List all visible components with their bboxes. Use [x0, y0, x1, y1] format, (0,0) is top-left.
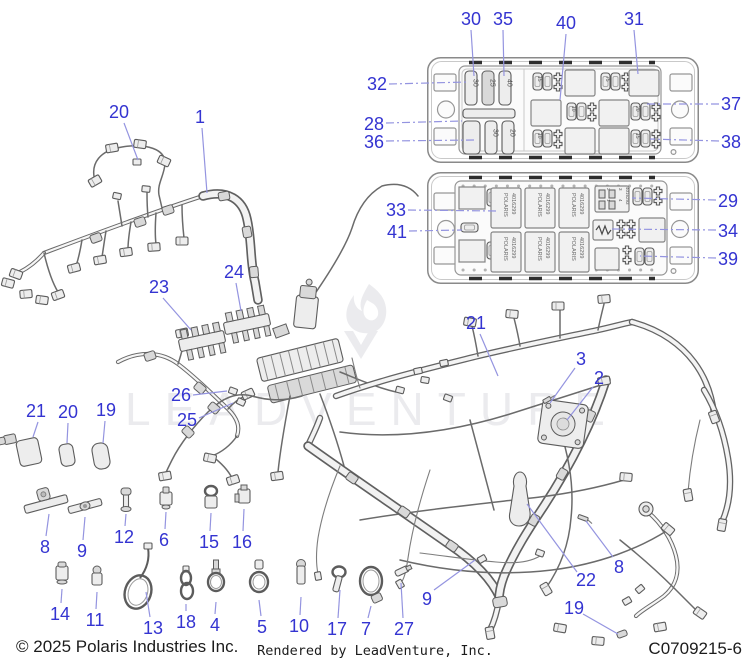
- part-6-clip: [160, 487, 172, 509]
- part-15-clip: [205, 486, 217, 508]
- part-4-bolt-clamp: [208, 560, 224, 591]
- fuse-value: 20: [509, 129, 516, 137]
- chassis-harness-art: [308, 294, 730, 645]
- svg-text:4016299: 4016299: [510, 237, 516, 258]
- part-7-clamp: [360, 567, 383, 604]
- callout-22: 22: [576, 571, 596, 589]
- callout-29: 29: [718, 192, 738, 210]
- callout-39: 39: [718, 250, 738, 268]
- part-21-connector: [0, 429, 42, 470]
- fuse-value: 40: [506, 79, 513, 87]
- aux-relay-part: 4016293: [625, 187, 630, 205]
- fuse-box-bottom: POLARIS 4016299 POLARIS 4016299 POLARIS …: [428, 173, 699, 284]
- callout-14: 14: [50, 605, 70, 623]
- svg-text:4016299: 4016299: [578, 237, 584, 258]
- mini-fuse-value: 20: [634, 106, 640, 112]
- callout-31: 31: [624, 10, 644, 28]
- svg-text:POLARIS: POLARIS: [536, 193, 542, 217]
- callout-9: 9: [422, 590, 432, 608]
- callout-33: 33: [386, 201, 406, 219]
- callout-2: 2: [594, 369, 604, 387]
- callout-15: 15: [199, 533, 219, 551]
- fuse-value: 30: [472, 79, 479, 87]
- callout-25: 25: [177, 411, 197, 429]
- part-18-wire-clip: [181, 566, 193, 599]
- svg-text:POLARIS: POLARIS: [502, 237, 508, 261]
- boot-part-22: [509, 472, 530, 526]
- callout-18: 18: [176, 613, 196, 631]
- callout-11: 11: [86, 611, 105, 629]
- part-17-eyelet: [332, 567, 345, 593]
- callout-24: 24: [224, 263, 244, 281]
- part-14-clip: [56, 562, 68, 584]
- svg-text:POLARIS: POLARIS: [570, 237, 576, 261]
- parts-diagram-page: LEADVENTURE: [0, 0, 750, 667]
- callout-8: 8: [614, 558, 624, 576]
- screw-part-8b: [578, 514, 593, 523]
- callout-12: 12: [114, 528, 134, 546]
- callout-7: 7: [361, 620, 371, 638]
- callout-40: 40: [556, 14, 576, 32]
- callout-28: 28: [364, 115, 384, 133]
- mini-fuse-value: 15: [634, 133, 640, 139]
- mini-fuse-value: 15: [536, 76, 542, 82]
- svg-text:POLARIS: POLARIS: [536, 237, 542, 261]
- fuse-value: 25: [489, 79, 496, 87]
- svg-text:4016299: 4016299: [544, 193, 550, 214]
- mini-fuse-value: 75: [604, 76, 610, 82]
- watermark-v-logo: [344, 331, 378, 359]
- callout-20: 20: [109, 103, 129, 121]
- callout-10: 10: [289, 617, 309, 635]
- callout-8: 8: [40, 538, 50, 556]
- callout-19: 19: [96, 401, 116, 419]
- svg-text:POLARIS: POLARIS: [502, 193, 508, 217]
- fuse-value: 30: [492, 129, 499, 137]
- callout-36: 36: [364, 133, 384, 151]
- callout-21: 21: [466, 314, 486, 332]
- diagram-canvas: LEADVENTURE: [0, 0, 750, 667]
- svg-text:4016299: 4016299: [510, 193, 516, 214]
- connector-comb-23: [176, 322, 227, 362]
- rendered-by-text: Rendered by LeadVenture, Inc.: [0, 643, 750, 659]
- callout-23: 23: [149, 278, 169, 296]
- callout-1: 1: [195, 108, 205, 126]
- callout-5: 5: [257, 618, 267, 636]
- callout-21: 21: [26, 402, 46, 420]
- part-19-cap: [91, 442, 111, 470]
- callout-3: 3: [576, 350, 586, 368]
- part-10-clip: [297, 560, 306, 585]
- callout-35: 35: [493, 10, 513, 28]
- callout-41: 41: [387, 223, 407, 241]
- part-11-clip: [92, 566, 102, 585]
- callout-20: 20: [58, 403, 78, 421]
- svg-text:4016299: 4016299: [544, 237, 550, 258]
- part-5-clamp: [250, 560, 268, 592]
- callout-17: 17: [327, 620, 347, 638]
- part-9-clip: [68, 498, 103, 515]
- svg-text:4016299: 4016299: [578, 193, 584, 214]
- callout-38: 38: [721, 133, 741, 151]
- callout-34: 34: [718, 222, 738, 240]
- mini-fuse-value: 10: [536, 133, 542, 139]
- callout-30: 30: [461, 10, 481, 28]
- part-8-tclip: [21, 483, 69, 514]
- callout-27: 27: [394, 620, 414, 638]
- callout-16: 16: [232, 533, 252, 551]
- svg-text:POLARIS: POLARIS: [570, 193, 576, 217]
- drawing-number-text: C0709215-6: [648, 639, 742, 659]
- callout-9: 9: [77, 542, 87, 560]
- callout-6: 6: [159, 531, 169, 549]
- part-20-cap: [58, 443, 76, 467]
- callout-19: 19: [564, 599, 584, 617]
- callout-37: 37: [721, 95, 741, 113]
- callout-26: 26: [171, 386, 191, 404]
- callout-32: 32: [367, 75, 387, 93]
- mount-plate-part-2: [537, 399, 589, 449]
- part-12-pushpin: [121, 488, 131, 512]
- connector-comb-24: [221, 305, 272, 345]
- part-16-clip: [235, 485, 250, 503]
- mini-fuse-value: 10: [570, 106, 576, 112]
- ecu-cluster-art: [256, 184, 452, 480]
- part-27-screw: [394, 564, 412, 577]
- callout-13: 13: [143, 619, 163, 637]
- part-13-cable-tie: [120, 543, 155, 612]
- callout-4: 4: [210, 616, 220, 634]
